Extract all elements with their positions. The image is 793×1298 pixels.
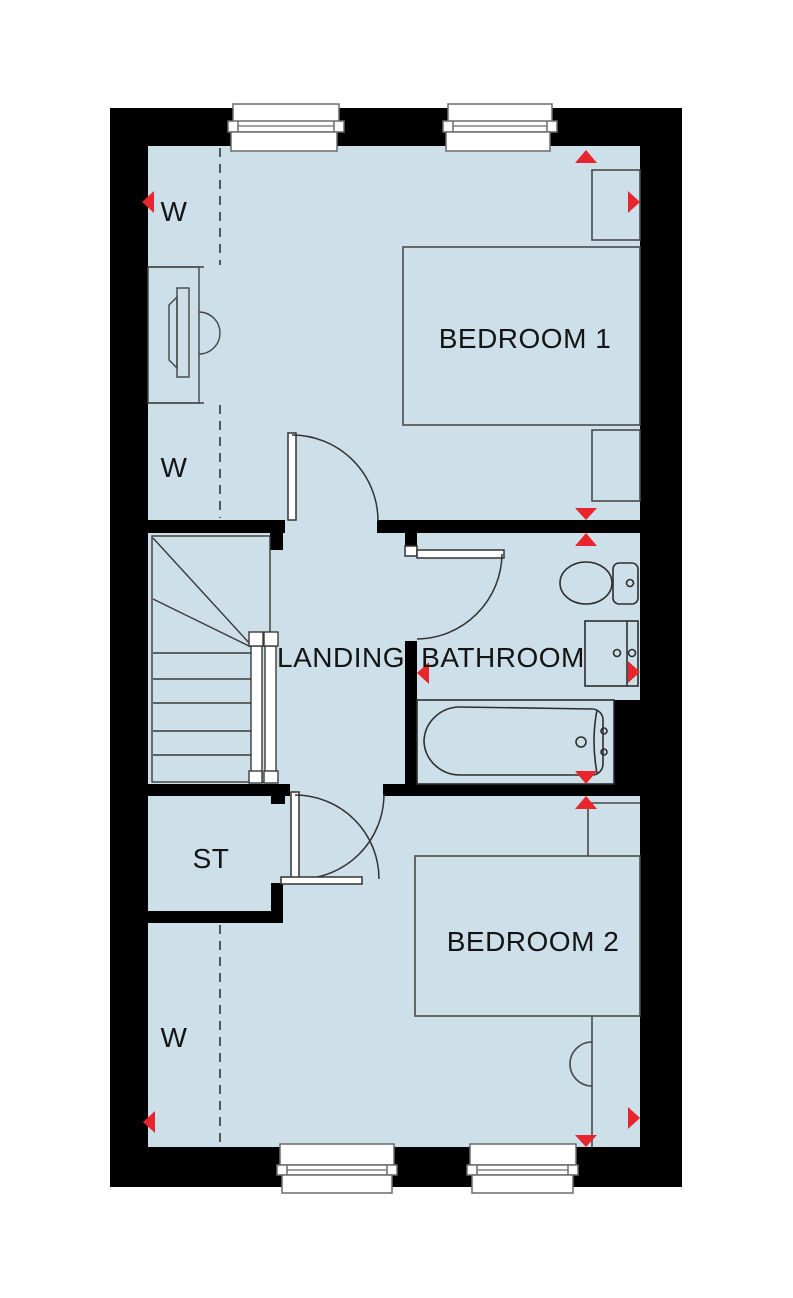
label-bedroom1: BEDROOM 1 (439, 323, 612, 354)
window-sill (472, 1175, 573, 1193)
wall-bedroom1-right (377, 520, 640, 533)
window-bottom-left (277, 1144, 397, 1193)
storage-door-leaf (291, 792, 299, 879)
wall-stairs-bottom (110, 784, 290, 796)
wall-bathroom-bottom (383, 784, 680, 796)
wall-top (110, 108, 682, 146)
label-wardrobe-bottom: W (161, 1022, 188, 1053)
window-top-right (443, 104, 557, 151)
stairs-newel-cap (249, 632, 263, 646)
label-wardrobe-top: W (161, 196, 188, 227)
label-storage: ST (193, 843, 230, 874)
floor-plan-page: W W BEDROOM 1 LANDING BATHROOM ST BEDROO… (0, 0, 793, 1298)
window-sill (233, 104, 339, 122)
wall-bathroom-left (405, 641, 417, 785)
stairs-handrail (251, 646, 262, 779)
window-board (231, 132, 337, 151)
wall-bath-notch (614, 700, 682, 796)
wall-bedroom1-left (148, 520, 285, 533)
wall-right (640, 108, 682, 1187)
label-wardrobe-middle: W (161, 452, 188, 483)
wall-stair-head-jamb (270, 533, 283, 550)
label-landing: LANDING (277, 642, 405, 673)
stairs-newel-cap (249, 771, 262, 783)
wall-storage-jamb (271, 792, 285, 804)
window-sill (448, 104, 552, 122)
window-bottom-right (467, 1144, 578, 1193)
label-bathroom: BATHROOM (421, 642, 585, 673)
bedroom1-door-leaf (288, 433, 296, 520)
window-sill (282, 1175, 392, 1193)
wall-storage-right (271, 883, 283, 923)
bedroom2-door-threshold (281, 877, 362, 884)
window-top-left (228, 104, 344, 151)
stairs-newel-cap (264, 632, 278, 646)
wall-left (110, 108, 148, 1187)
bathroom-door-leaf (417, 550, 504, 558)
bathroom-door-hinge (405, 546, 417, 556)
stairs-newel-cap (264, 771, 278, 783)
stairs-handrail (265, 646, 276, 779)
label-bedroom2: BEDROOM 2 (447, 926, 620, 957)
window-board (446, 132, 550, 151)
window-board (280, 1144, 394, 1165)
floor-plan-drawing: W W BEDROOM 1 LANDING BATHROOM ST BEDROO… (0, 0, 793, 1298)
wall-storage-bottom (110, 911, 283, 923)
window-board (470, 1144, 576, 1165)
